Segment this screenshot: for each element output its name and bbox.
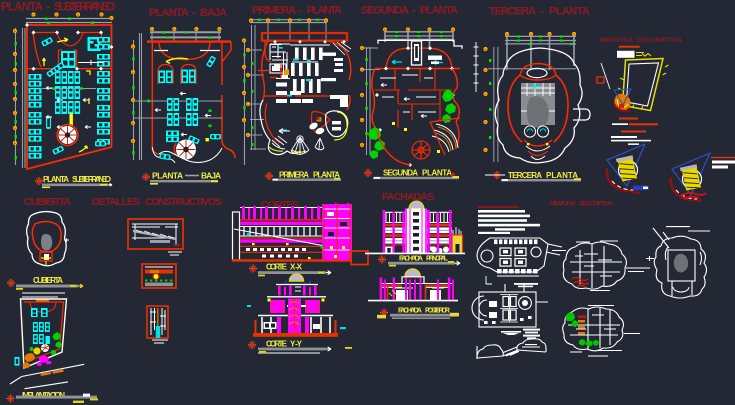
svg-text:TERCERA: TERCERA [489,6,536,18]
svg-text:SUBTERRANEO: SUBTERRANEO [54,2,115,14]
svg-text:PLANTA: PLANTA [422,169,452,178]
svg-text:PRINCIPAL: PRINCIPAL [426,253,449,262]
svg-text:FACHADA: FACHADA [398,305,422,314]
svg-text:-: - [192,7,196,19]
svg-text:DESCRIPTIVA: DESCRIPTIVA [637,37,682,44]
svg-text:-: - [299,5,303,17]
svg-text:BAJA: BAJA [201,171,221,181]
svg-text:-: - [412,5,416,17]
svg-text:PRIMERA: PRIMERA [252,5,296,17]
svg-text:FACHADAS.: FACHADAS. [382,191,436,203]
svg-text:SUBTERRANEO: SUBTERRANEO [72,175,111,184]
svg-text:-: - [46,2,50,14]
svg-text:TERCERA: TERCERA [508,171,542,180]
svg-text:CONSTRUCTIVOS: CONSTRUCTIVOS [145,196,222,208]
svg-text:PLANTA: PLANTA [546,171,578,180]
svg-text:CUBIERTA: CUBIERTA [33,276,63,285]
svg-text:PLANTA: PLANTA [43,175,69,184]
svg-text:CORTE: CORTE [266,263,288,272]
svg-text:FACHADA: FACHADA [399,253,423,262]
svg-text:-: - [540,6,544,18]
svg-text:X -X: X -X [290,263,303,272]
svg-text:CUBIERTA: CUBIERTA [24,196,71,208]
svg-text:DETALLES: DETALLES [92,196,140,208]
svg-text:PLANTA: PLANTA [1,2,43,14]
svg-text:CORTE: CORTE [266,340,288,349]
svg-text:BAJA: BAJA [200,7,227,19]
svg-text:Y -Y: Y -Y [290,340,303,349]
svg-text:SEGUNDA: SEGUNDA [383,169,418,178]
svg-text:PRIMERA: PRIMERA [279,171,309,180]
svg-text:POSTERIOR: POSTERIOR [425,305,451,314]
svg-text:SEGUNDA: SEGUNDA [361,5,409,17]
svg-text:PLANTA: PLANTA [307,5,342,17]
svg-text:DESCRIPTIVA: DESCRIPTIVA [579,201,613,208]
svg-text:IMPLANTACION: IMPLANTACION [22,391,65,400]
svg-text:MEMORIA: MEMORIA [550,201,576,208]
svg-text:PLANTA: PLANTA [152,171,183,181]
svg-text:PLANTA: PLANTA [420,5,458,17]
svg-text:MEMORIA: MEMORIA [600,37,633,44]
svg-text:PLANTA: PLANTA [549,6,590,18]
svg-text:PLANTA: PLANTA [149,7,189,19]
